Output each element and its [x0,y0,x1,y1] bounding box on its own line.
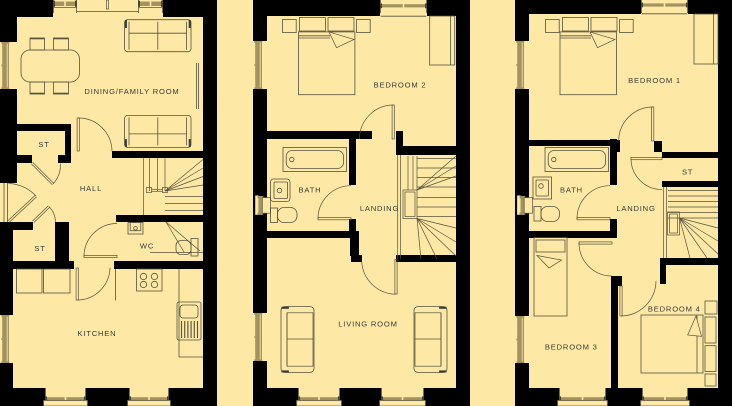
svg-text:ST: ST [682,168,693,177]
svg-text:ST: ST [34,244,45,253]
svg-text:BEDROOM 2: BEDROOM 2 [374,81,427,90]
svg-text:WC: WC [140,242,154,251]
svg-text:BEDROOM 1: BEDROOM 1 [628,76,681,85]
svg-text:LANDING: LANDING [360,204,399,213]
svg-text:LIVING ROOM: LIVING ROOM [338,320,397,329]
svg-text:DINING/FAMILY ROOM: DINING/FAMILY ROOM [84,87,179,96]
svg-text:BATH: BATH [560,186,583,195]
svg-text:BEDROOM 4: BEDROOM 4 [648,304,701,313]
svg-text:LANDING: LANDING [616,204,655,213]
svg-text:BEDROOM 3: BEDROOM 3 [545,342,598,351]
svg-text:HALL: HALL [80,184,102,193]
svg-text:BATH: BATH [299,186,322,195]
svg-text:ST: ST [38,140,49,149]
svg-text:KITCHEN: KITCHEN [78,329,117,338]
